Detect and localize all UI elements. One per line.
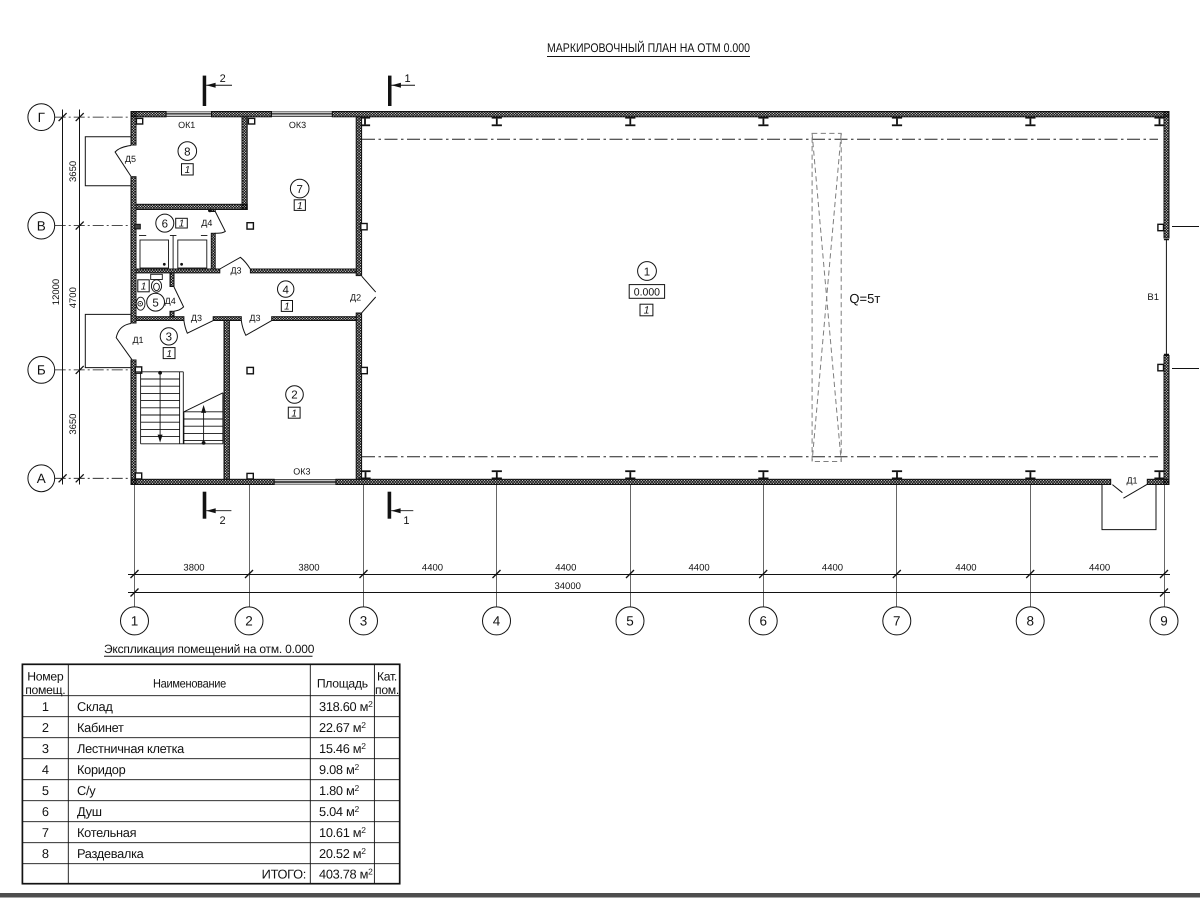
- svg-text:8: 8: [184, 146, 190, 158]
- svg-text:помещ.: помещ.: [25, 683, 65, 697]
- svg-text:4400: 4400: [689, 563, 710, 574]
- svg-text:2: 2: [220, 73, 226, 85]
- svg-text:5: 5: [42, 783, 49, 798]
- svg-text:3650: 3650: [68, 414, 79, 435]
- svg-text:МАРКИРОВОЧНЫЙ ПЛАН НА ОТМ 0.00: МАРКИРОВОЧНЫЙ ПЛАН НА ОТМ 0.000: [547, 40, 750, 55]
- svg-text:Склад: Склад: [77, 699, 113, 714]
- svg-text:Д4: Д4: [201, 218, 212, 228]
- svg-text:7: 7: [42, 825, 49, 840]
- svg-text:4400: 4400: [555, 563, 576, 574]
- svg-text:1: 1: [291, 408, 297, 419]
- svg-text:Экспликация помещений на отм.: Экспликация помещений на отм. 0.000: [104, 642, 315, 656]
- svg-text:Номер: Номер: [27, 670, 64, 684]
- svg-text:3800: 3800: [298, 563, 319, 574]
- svg-text:10.61 м2: 10.61 м2: [319, 825, 366, 840]
- svg-text:1: 1: [403, 515, 409, 527]
- svg-text:1: 1: [141, 282, 147, 293]
- svg-text:А: А: [37, 471, 46, 486]
- svg-text:3: 3: [42, 741, 49, 756]
- svg-text:Д4: Д4: [165, 296, 176, 306]
- svg-text:4400: 4400: [422, 563, 443, 574]
- svg-text:3800: 3800: [183, 563, 204, 574]
- svg-text:пом.: пом.: [375, 683, 399, 697]
- svg-text:22.67 м2: 22.67 м2: [319, 720, 366, 735]
- svg-text:34000: 34000: [554, 581, 580, 592]
- svg-text:2: 2: [42, 720, 49, 735]
- svg-text:318.60 м2: 318.60 м2: [319, 699, 373, 714]
- svg-text:7: 7: [893, 614, 901, 629]
- svg-text:Д3: Д3: [230, 266, 241, 276]
- svg-text:Д3: Д3: [249, 313, 260, 323]
- svg-text:9: 9: [1160, 614, 1168, 629]
- svg-text:1: 1: [42, 699, 49, 714]
- svg-text:С/у: С/у: [77, 783, 96, 798]
- svg-text:6: 6: [759, 614, 767, 629]
- svg-text:1: 1: [166, 349, 172, 360]
- svg-text:9.08 м2: 9.08 м2: [319, 762, 359, 777]
- svg-text:1: 1: [131, 614, 139, 629]
- svg-text:403.78 м2: 403.78 м2: [319, 867, 373, 882]
- svg-text:Q=5т: Q=5т: [849, 291, 880, 306]
- svg-text:1: 1: [644, 305, 650, 317]
- svg-text:Раздевалка: Раздевалка: [77, 846, 145, 861]
- svg-text:4: 4: [282, 284, 289, 296]
- svg-text:1: 1: [284, 302, 290, 313]
- svg-text:Д1: Д1: [132, 335, 143, 345]
- svg-text:ОК3: ОК3: [289, 120, 306, 130]
- svg-text:3650: 3650: [68, 161, 79, 182]
- svg-text:Д2: Д2: [350, 293, 361, 303]
- svg-text:2: 2: [245, 614, 253, 629]
- svg-text:В1: В1: [1147, 292, 1159, 303]
- svg-text:1: 1: [185, 165, 191, 176]
- svg-text:Котельная: Котельная: [77, 825, 137, 840]
- svg-text:Г: Г: [38, 110, 46, 125]
- svg-text:1: 1: [179, 219, 185, 230]
- svg-text:8: 8: [42, 846, 49, 861]
- svg-text:В: В: [37, 218, 46, 233]
- svg-text:12000: 12000: [51, 279, 62, 305]
- svg-text:5: 5: [626, 614, 634, 629]
- svg-text:Д3: Д3: [191, 313, 202, 323]
- svg-text:3: 3: [166, 332, 172, 344]
- svg-text:15.46 м2: 15.46 м2: [319, 741, 366, 756]
- svg-text:6: 6: [42, 804, 49, 819]
- svg-text:2: 2: [219, 515, 225, 527]
- svg-text:Б: Б: [37, 363, 46, 378]
- svg-text:1: 1: [404, 73, 410, 85]
- svg-text:Д1: Д1: [1126, 475, 1137, 485]
- svg-text:7: 7: [296, 184, 302, 196]
- svg-text:1: 1: [297, 201, 303, 212]
- svg-text:Коридор: Коридор: [77, 762, 126, 777]
- svg-text:6: 6: [162, 218, 168, 230]
- svg-text:2: 2: [291, 390, 297, 402]
- svg-text:4: 4: [42, 762, 49, 777]
- svg-text:4400: 4400: [822, 563, 843, 574]
- svg-text:ОК3: ОК3: [293, 467, 310, 477]
- svg-text:Д5: Д5: [125, 154, 136, 164]
- svg-text:4700: 4700: [68, 287, 79, 308]
- svg-text:ОК1: ОК1: [178, 120, 195, 130]
- svg-text:Кабинет: Кабинет: [77, 720, 124, 735]
- svg-text:Кат.: Кат.: [377, 670, 397, 684]
- svg-text:Душ: Душ: [77, 804, 102, 819]
- svg-text:4400: 4400: [1089, 563, 1110, 574]
- svg-text:0.000: 0.000: [634, 287, 660, 299]
- svg-text:1: 1: [644, 266, 650, 278]
- svg-text:20.52 м2: 20.52 м2: [319, 846, 366, 861]
- svg-text:4400: 4400: [955, 563, 976, 574]
- svg-text:3: 3: [360, 614, 368, 629]
- svg-text:5.04 м2: 5.04 м2: [319, 804, 359, 819]
- svg-text:8: 8: [1026, 614, 1034, 629]
- svg-text:4: 4: [493, 614, 501, 629]
- svg-text:1.80 м2: 1.80 м2: [319, 783, 359, 798]
- svg-text:Лестничная клетка: Лестничная клетка: [77, 741, 185, 756]
- svg-text:Наименование: Наименование: [153, 677, 226, 691]
- svg-text:Площадь: Площадь: [317, 677, 368, 691]
- svg-text:ИТОГО:: ИТОГО:: [262, 867, 306, 882]
- svg-text:5: 5: [152, 297, 158, 309]
